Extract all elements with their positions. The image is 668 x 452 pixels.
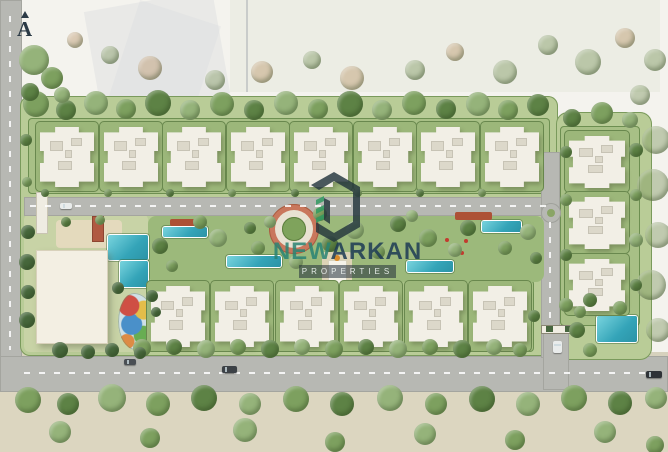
tree — [561, 385, 587, 411]
building-north-1-roof — [40, 127, 94, 187]
tree — [563, 109, 581, 127]
building-north-1-roof-unit — [50, 141, 63, 151]
building-south-4-roof-unit — [354, 301, 367, 311]
tree — [630, 279, 642, 291]
building-south-2 — [215, 286, 269, 347]
car-windshield — [225, 367, 227, 372]
tree — [291, 189, 299, 197]
building-east-2-roof-unit — [595, 217, 603, 224]
tree — [283, 386, 309, 412]
tree — [41, 67, 63, 89]
tree — [642, 126, 668, 154]
building-south-5-roof-unit — [434, 309, 442, 317]
tree — [405, 60, 425, 80]
tree — [644, 49, 666, 71]
tree — [493, 60, 517, 84]
building-north-5-roof-unit — [319, 150, 327, 158]
tree — [52, 342, 68, 358]
building-south-3 — [280, 286, 334, 347]
tree — [615, 28, 635, 48]
tree — [629, 143, 643, 157]
tree — [622, 112, 638, 128]
tree — [583, 293, 597, 307]
building-south-5-roof-unit — [440, 297, 451, 306]
tree — [416, 189, 424, 197]
tree — [244, 100, 264, 120]
building-east-3-roof-unit — [595, 279, 603, 286]
building-south-4-roof — [344, 286, 398, 347]
building-north-3 — [167, 127, 221, 187]
building-north-7-roof-unit — [446, 150, 454, 158]
car-windshield — [554, 344, 561, 346]
pergola-east — [455, 212, 492, 220]
pool-east — [597, 316, 637, 342]
building-east-1-roof-unit — [579, 148, 592, 156]
building-south-5-roof-unit — [419, 301, 432, 311]
tree — [49, 421, 71, 443]
tree — [425, 393, 447, 415]
tree — [191, 385, 217, 411]
building-east-2-roof-unit — [588, 226, 603, 234]
tree — [629, 233, 643, 247]
tree — [21, 285, 35, 299]
tree — [151, 307, 161, 317]
building-east-1-roof-unit — [588, 165, 603, 173]
tree — [354, 189, 362, 197]
building-south-6-roof — [473, 286, 527, 347]
tree — [21, 83, 39, 101]
tree — [20, 134, 32, 146]
tree — [261, 340, 279, 358]
building-south-1 — [151, 286, 205, 347]
tree — [251, 241, 265, 255]
road-dash-line — [24, 372, 664, 374]
flower-dot — [445, 238, 449, 242]
tree — [520, 224, 536, 240]
tree — [560, 249, 572, 261]
building-north-6-roof-unit — [376, 161, 390, 171]
tree — [419, 229, 437, 247]
tree — [377, 385, 403, 411]
tree — [453, 340, 471, 358]
building-north-3-roof — [167, 127, 221, 187]
building-north-3-roof-unit — [177, 141, 190, 151]
tree — [308, 99, 328, 119]
tree — [402, 91, 426, 115]
tree — [448, 243, 462, 257]
flower-dot — [464, 239, 468, 243]
building-south-1-roof-unit — [176, 309, 184, 317]
tree — [390, 216, 406, 232]
tree — [152, 238, 168, 254]
roundabout-center — [547, 209, 555, 217]
building-north-1-roof-unit — [71, 138, 82, 146]
building-south-4-roof-unit — [375, 297, 386, 306]
tree — [645, 387, 667, 409]
building-north-4 — [231, 127, 285, 187]
tree — [340, 66, 364, 90]
road-dash-line — [30, 205, 546, 207]
tree — [422, 339, 438, 355]
building-east-3-roof-unit — [579, 271, 592, 279]
gate-booth-west — [546, 326, 553, 332]
tree — [57, 393, 79, 415]
building-north-3-roof-unit — [185, 161, 199, 171]
lap-pool-2 — [227, 256, 281, 267]
building-north-8-roof-unit — [516, 138, 527, 146]
building-east-2-roof-unit — [579, 209, 592, 217]
building-north-5-roof-unit — [312, 161, 326, 171]
lap-pool-3 — [407, 261, 453, 272]
tree — [460, 220, 476, 236]
building-south-3-roof-unit — [305, 309, 313, 317]
tree — [505, 430, 525, 450]
tree — [372, 100, 392, 120]
tree — [56, 100, 76, 120]
tree — [560, 194, 572, 206]
tree — [105, 343, 119, 357]
building-south-5-roof — [409, 286, 463, 347]
building-north-2-roof-unit — [114, 141, 127, 151]
road-gate-driveway — [543, 330, 569, 390]
clubhouse — [36, 250, 108, 344]
car — [124, 359, 136, 365]
building-south-1-roof-unit — [161, 301, 174, 311]
tree — [112, 282, 124, 294]
tree — [61, 217, 71, 227]
tree — [322, 236, 338, 252]
building-north-6 — [358, 127, 412, 187]
tree — [146, 392, 170, 416]
building-north-8 — [485, 127, 539, 187]
tree — [389, 340, 407, 358]
building-north-7-roof-unit — [452, 138, 463, 146]
car — [60, 203, 72, 209]
building-north-5-roof — [294, 127, 348, 187]
tree — [594, 421, 616, 443]
building-north-6-roof-unit — [383, 150, 391, 158]
tree — [630, 189, 642, 201]
tree — [230, 339, 246, 355]
tree — [166, 189, 174, 197]
building-north-3-roof-unit — [198, 138, 209, 146]
building-south-2-roof-unit — [240, 309, 248, 317]
building-north-6-roof — [358, 127, 412, 187]
building-south-2-roof-unit — [246, 297, 257, 306]
building-south-6-roof-unit — [491, 320, 505, 330]
building-south-2-roof — [215, 286, 269, 347]
building-south-4-roof-unit — [362, 320, 376, 330]
tree — [646, 318, 668, 342]
tree — [575, 49, 601, 75]
tree — [325, 432, 345, 452]
tree — [41, 189, 49, 197]
tree — [67, 32, 83, 48]
tree — [21, 225, 35, 239]
tree — [84, 91, 108, 115]
building-east-2-roof-unit — [601, 206, 612, 213]
tree — [513, 343, 527, 357]
building-south-6-roof-unit — [504, 297, 515, 306]
building-east-1 — [569, 136, 625, 188]
building-east-2 — [569, 197, 625, 249]
building-north-7-roof-unit — [439, 161, 453, 171]
tree — [358, 339, 374, 355]
building-north-8-roof-unit — [503, 161, 517, 171]
tree — [645, 222, 668, 248]
car-windshield — [63, 204, 65, 208]
building-south-3-roof-unit — [298, 320, 312, 330]
building-north-8-roof — [485, 127, 539, 187]
building-south-3-roof-unit — [311, 297, 322, 306]
building-north-2-roof — [104, 127, 158, 187]
building-south-1-roof-unit — [182, 297, 193, 306]
tree — [446, 43, 464, 61]
tree — [630, 85, 650, 105]
building-north-4-roof — [231, 127, 285, 187]
tree — [134, 347, 146, 359]
tree — [486, 339, 502, 355]
pool-clubhouse-small — [120, 261, 148, 287]
building-north-2 — [104, 127, 158, 187]
building-north-1 — [40, 127, 94, 187]
building-south-6-roof-unit — [498, 309, 506, 317]
tree — [210, 92, 234, 116]
building-south-6 — [473, 286, 527, 347]
building-east-1-roof-unit — [601, 145, 612, 152]
tree — [166, 339, 182, 355]
tree — [166, 260, 178, 272]
tree — [19, 312, 35, 328]
tree — [538, 35, 558, 55]
building-north-4-roof-unit — [256, 150, 264, 158]
building-north-7 — [421, 127, 475, 187]
tree — [560, 146, 572, 158]
car — [553, 341, 562, 353]
building-east-2-roof — [569, 197, 625, 249]
building-north-2-roof-unit — [122, 161, 136, 171]
tree — [15, 387, 41, 413]
tree — [646, 436, 664, 452]
tree — [145, 90, 171, 116]
building-north-5-roof-unit — [304, 141, 317, 151]
tree — [101, 46, 119, 64]
tree — [583, 343, 597, 357]
building-south-2-roof-unit — [225, 301, 238, 311]
tree — [371, 245, 385, 259]
building-south-2-roof-unit — [233, 320, 247, 330]
pool-clubhouse-main — [108, 235, 148, 260]
car-windshield — [649, 372, 651, 377]
tree — [104, 189, 112, 197]
tree — [569, 322, 585, 338]
building-north-8-roof-unit — [495, 141, 508, 151]
building-south-5 — [409, 286, 463, 347]
building-north-8-roof-unit — [510, 150, 518, 158]
lap-pool-4 — [482, 221, 521, 232]
tree — [228, 189, 236, 197]
tree — [528, 310, 540, 322]
tree — [54, 87, 70, 103]
building-east-1-roof-unit — [595, 156, 603, 163]
road-dash-line — [549, 222, 551, 322]
tree — [608, 391, 632, 415]
north-indicator: A — [17, 11, 32, 40]
tree — [244, 222, 256, 234]
tree — [574, 306, 586, 318]
building-north-6-roof-unit — [368, 141, 381, 151]
context-wash-top — [230, 0, 660, 92]
tree — [264, 216, 276, 228]
tree — [140, 428, 160, 448]
building-north-1-roof-unit — [58, 161, 72, 171]
tree — [516, 392, 540, 416]
building-east-1-roof — [569, 136, 625, 188]
tree — [233, 418, 257, 442]
tree — [180, 100, 200, 120]
building-south-4-roof-unit — [369, 309, 377, 317]
tree — [406, 210, 418, 222]
tree — [346, 221, 364, 239]
tree — [498, 100, 518, 120]
tree — [239, 393, 261, 415]
site-plan-canvas: A NEWARKAN PROPERTIES — [0, 0, 668, 452]
tree — [478, 189, 486, 197]
tree — [337, 91, 363, 117]
tree — [414, 423, 436, 445]
building-north-7-roof-unit — [431, 141, 444, 151]
entry-trellis — [36, 192, 48, 234]
building-north-1-roof-unit — [65, 150, 73, 158]
car — [646, 371, 662, 378]
tree — [294, 339, 310, 355]
building-north-2-roof-unit — [129, 150, 137, 158]
tree — [205, 70, 225, 90]
car — [222, 366, 237, 373]
building-south-5-roof-unit — [427, 320, 441, 330]
tree — [98, 384, 126, 412]
plaza-garden-center — [282, 217, 306, 241]
building-north-4-roof-unit — [262, 138, 273, 146]
tree — [469, 386, 495, 412]
building-north-6-roof-unit — [389, 138, 400, 146]
tree — [251, 61, 273, 83]
building-south-3-roof — [280, 286, 334, 347]
tree — [559, 298, 573, 312]
building-south-1-roof-unit — [169, 320, 183, 330]
building-north-5 — [294, 127, 348, 187]
building-north-2-roof-unit — [135, 138, 146, 146]
tree — [81, 345, 95, 359]
road-dash-line — [9, 16, 11, 350]
tree — [325, 340, 343, 358]
tree — [116, 99, 136, 119]
tree — [22, 177, 32, 187]
building-south-3-roof-unit — [290, 301, 303, 311]
building-south-6-roof-unit — [483, 301, 496, 311]
tree — [146, 290, 158, 302]
tree — [197, 340, 215, 358]
tree — [527, 94, 549, 116]
tree — [466, 92, 490, 116]
tree — [530, 252, 542, 264]
tree — [613, 301, 627, 315]
tree — [193, 215, 207, 229]
tree — [209, 229, 227, 247]
tree — [591, 102, 613, 124]
building-north-4-roof-unit — [241, 141, 254, 151]
tree — [313, 207, 327, 221]
tree — [138, 56, 162, 80]
building-north-3-roof-unit — [192, 150, 200, 158]
building-north-4-roof-unit — [249, 161, 263, 171]
tree — [498, 241, 512, 255]
building-south-4 — [344, 286, 398, 347]
building-south-1-roof — [151, 286, 205, 347]
tree — [436, 99, 456, 119]
tree — [330, 392, 354, 416]
car-windshield — [127, 360, 129, 364]
tree — [303, 51, 321, 69]
building-east-3-roof-unit — [601, 268, 612, 275]
building-north-5-roof-unit — [325, 138, 336, 146]
axis-pavilion-accent — [334, 255, 340, 261]
tree — [19, 254, 35, 270]
tree — [289, 255, 303, 269]
north-label: A — [17, 17, 32, 41]
building-north-7-roof — [421, 127, 475, 187]
context-pole — [246, 0, 248, 92]
tree — [274, 91, 298, 115]
tree — [95, 215, 105, 225]
